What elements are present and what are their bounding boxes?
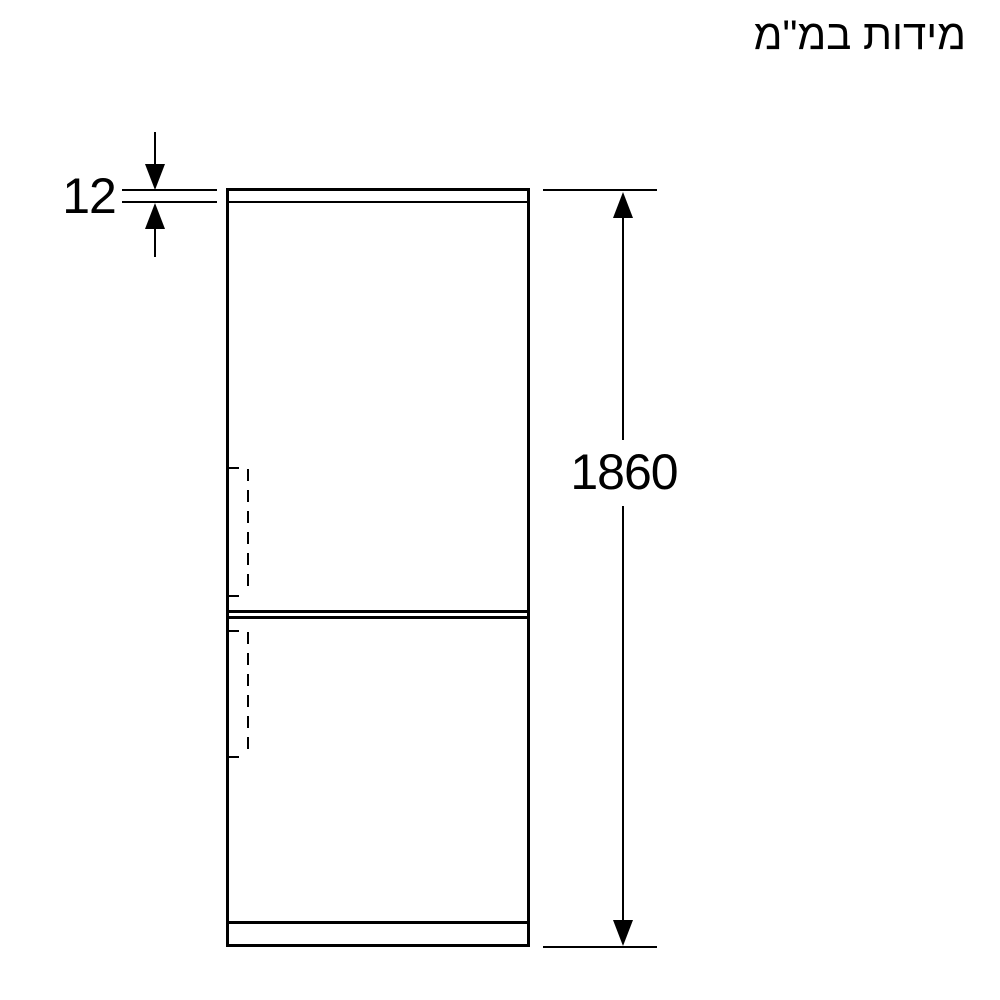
- upper-hinge-tick-bottom: [229, 595, 239, 597]
- dimension-diagram: מידות במ"מ 12 1860: [0, 0, 1000, 1000]
- dimension-label-top-panel: 12: [55, 170, 123, 222]
- dimension-line-height-lower: [622, 506, 624, 921]
- diagram-title: מידות במ"מ: [754, 12, 966, 58]
- extension-line-top-upper: [122, 189, 217, 191]
- extension-line-height-bottom: [543, 946, 657, 948]
- plinth-line: [229, 921, 527, 924]
- lower-hinge-dashed-line: [247, 632, 249, 756]
- arrow-up-icon: [613, 192, 633, 218]
- dimension-line-height-upper: [622, 216, 624, 440]
- top-panel-line: [229, 201, 527, 203]
- lower-hinge-tick-top: [229, 630, 239, 632]
- dimension-label-overall-height: 1860: [558, 446, 690, 498]
- door-divider-line-upper: [229, 610, 527, 613]
- arrow-up-icon: [145, 203, 165, 229]
- extension-line-top-lower: [122, 201, 217, 203]
- door-divider-line-lower: [229, 616, 527, 619]
- extension-line-height-top: [543, 189, 657, 191]
- upper-hinge-dashed-line: [247, 469, 249, 595]
- arrow-down-icon: [613, 920, 633, 946]
- dimension-line-top-below: [154, 229, 156, 257]
- dimension-line-top-above: [154, 132, 156, 166]
- lower-hinge-tick-bottom: [229, 756, 239, 758]
- arrow-down-icon: [145, 164, 165, 190]
- appliance-outline: [226, 188, 530, 947]
- upper-hinge-tick-top: [229, 467, 239, 469]
